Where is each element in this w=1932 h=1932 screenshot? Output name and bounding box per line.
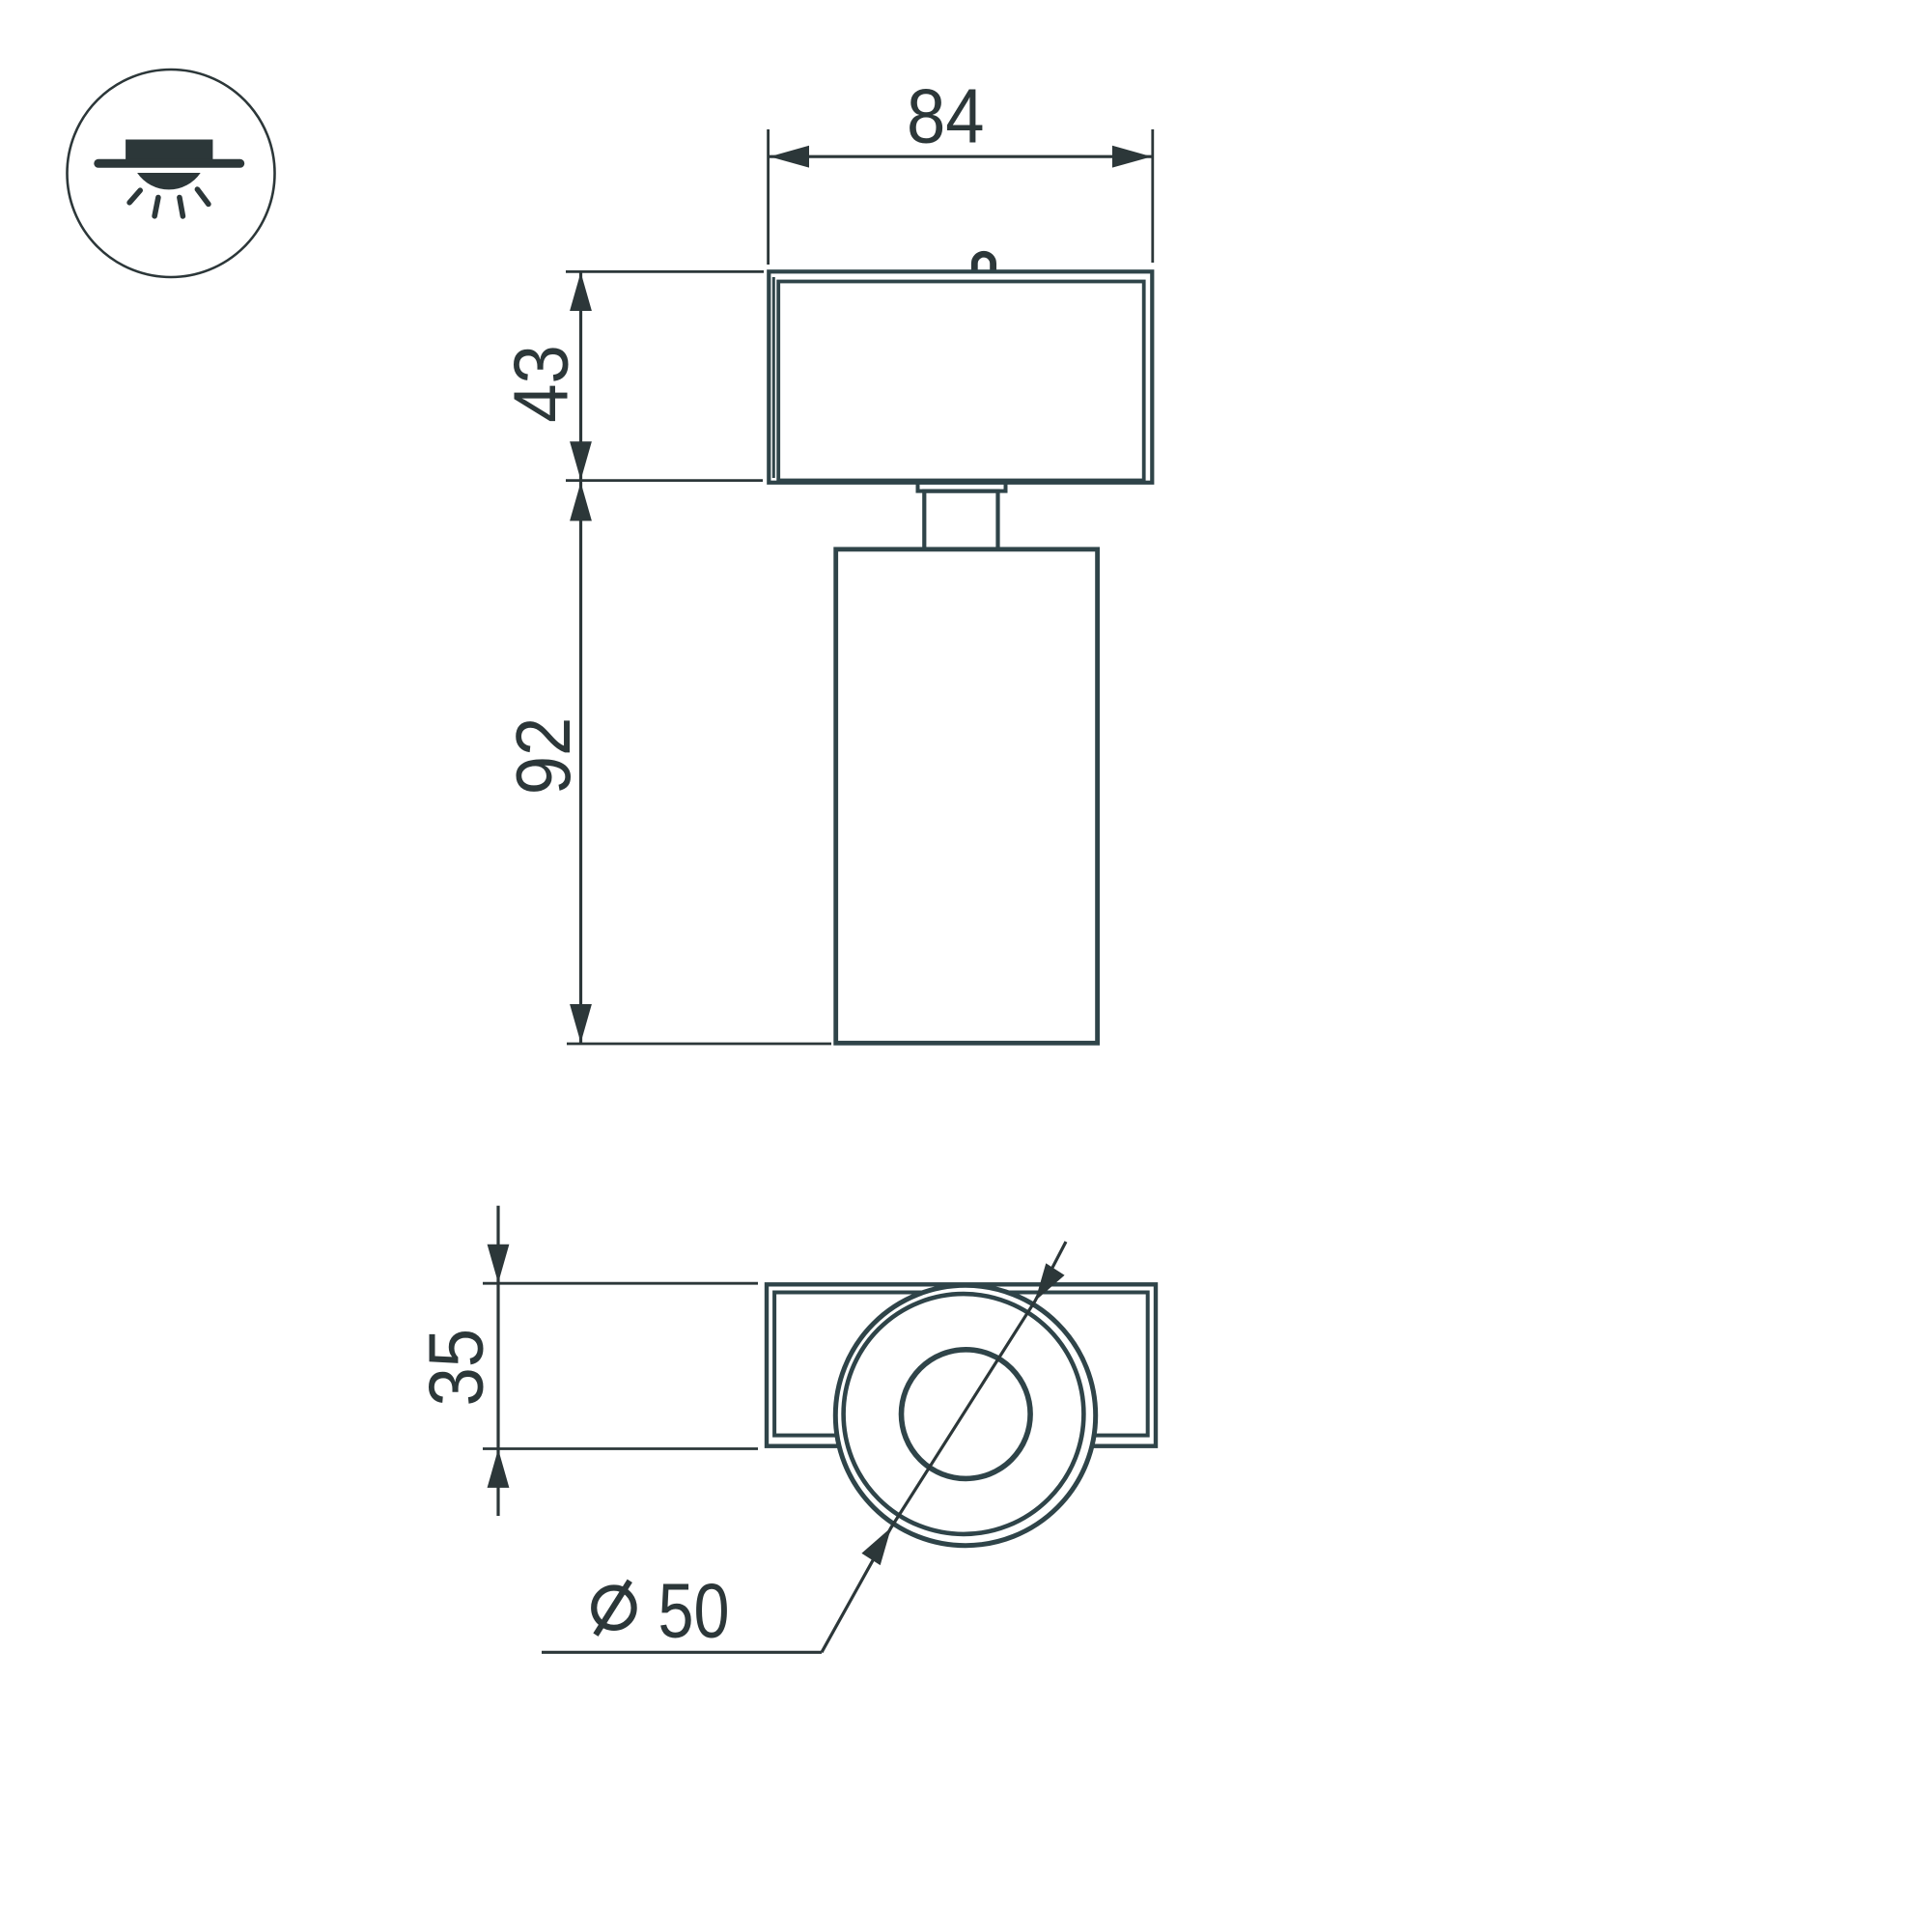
svg-text:92: 92 [500, 717, 586, 796]
svg-text:50: 50 [658, 1567, 730, 1653]
svg-text:35: 35 [412, 1329, 498, 1407]
svg-text:43: 43 [498, 345, 584, 423]
svg-text:84: 84 [907, 72, 985, 158]
